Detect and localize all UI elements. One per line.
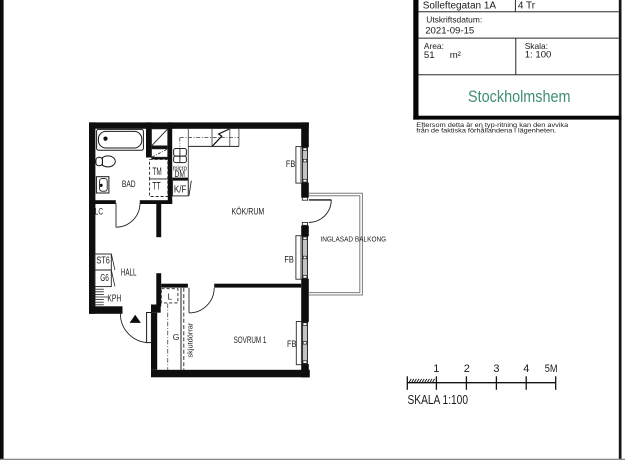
svg-text:KPH: KPH	[107, 294, 121, 305]
svg-text:från de faktiska förhållandena: från de faktiska förhållandena i lägenhe…	[416, 127, 556, 135]
svg-text:BAD: BAD	[122, 179, 136, 190]
svg-text:FB: FB	[287, 339, 296, 350]
svg-text:4: 4	[523, 363, 529, 375]
svg-text:G6: G6	[100, 273, 109, 284]
svg-text:Utskriftsdatum:: Utskriftsdatum:	[426, 15, 482, 25]
svg-text:KÖK/RUM: KÖK/RUM	[232, 206, 265, 216]
svg-text:m²: m²	[450, 50, 462, 61]
svg-text:Solleftegatan 1A: Solleftegatan 1A	[423, 0, 497, 11]
svg-text:1: 1	[433, 363, 439, 375]
svg-text:SOVRUM 1: SOVRUM 1	[234, 335, 267, 346]
svg-text:2: 2	[464, 363, 470, 375]
svg-text:K/F: K/F	[174, 185, 187, 196]
svg-text:5M: 5M	[545, 363, 558, 375]
svg-text:2021-09-15: 2021-09-15	[425, 25, 474, 36]
svg-text:TT: TT	[152, 180, 160, 192]
svg-text:G: G	[173, 332, 180, 342]
svg-text:4 Tr: 4 Tr	[518, 0, 536, 11]
svg-text:51: 51	[424, 50, 435, 61]
svg-text:skjutdörrar: skjutdörrar	[185, 322, 194, 357]
svg-text:SKALA 1:100: SKALA 1:100	[408, 392, 469, 407]
svg-text:LC: LC	[95, 207, 104, 217]
svg-text:Stockholmshem: Stockholmshem	[468, 87, 571, 106]
svg-text:HALL: HALL	[121, 268, 137, 279]
svg-text:TM: TM	[152, 166, 161, 178]
svg-text:FB: FB	[284, 254, 293, 265]
svg-text:INGLASAD BALKONG: INGLASAD BALKONG	[320, 234, 386, 243]
svg-text:3: 3	[493, 363, 499, 375]
svg-text:L: L	[168, 293, 173, 302]
svg-text:DM: DM	[175, 169, 185, 179]
svg-text:FB: FB	[286, 159, 295, 170]
svg-text:1: 100: 1: 100	[525, 50, 552, 61]
svg-text:ST6: ST6	[97, 256, 111, 267]
